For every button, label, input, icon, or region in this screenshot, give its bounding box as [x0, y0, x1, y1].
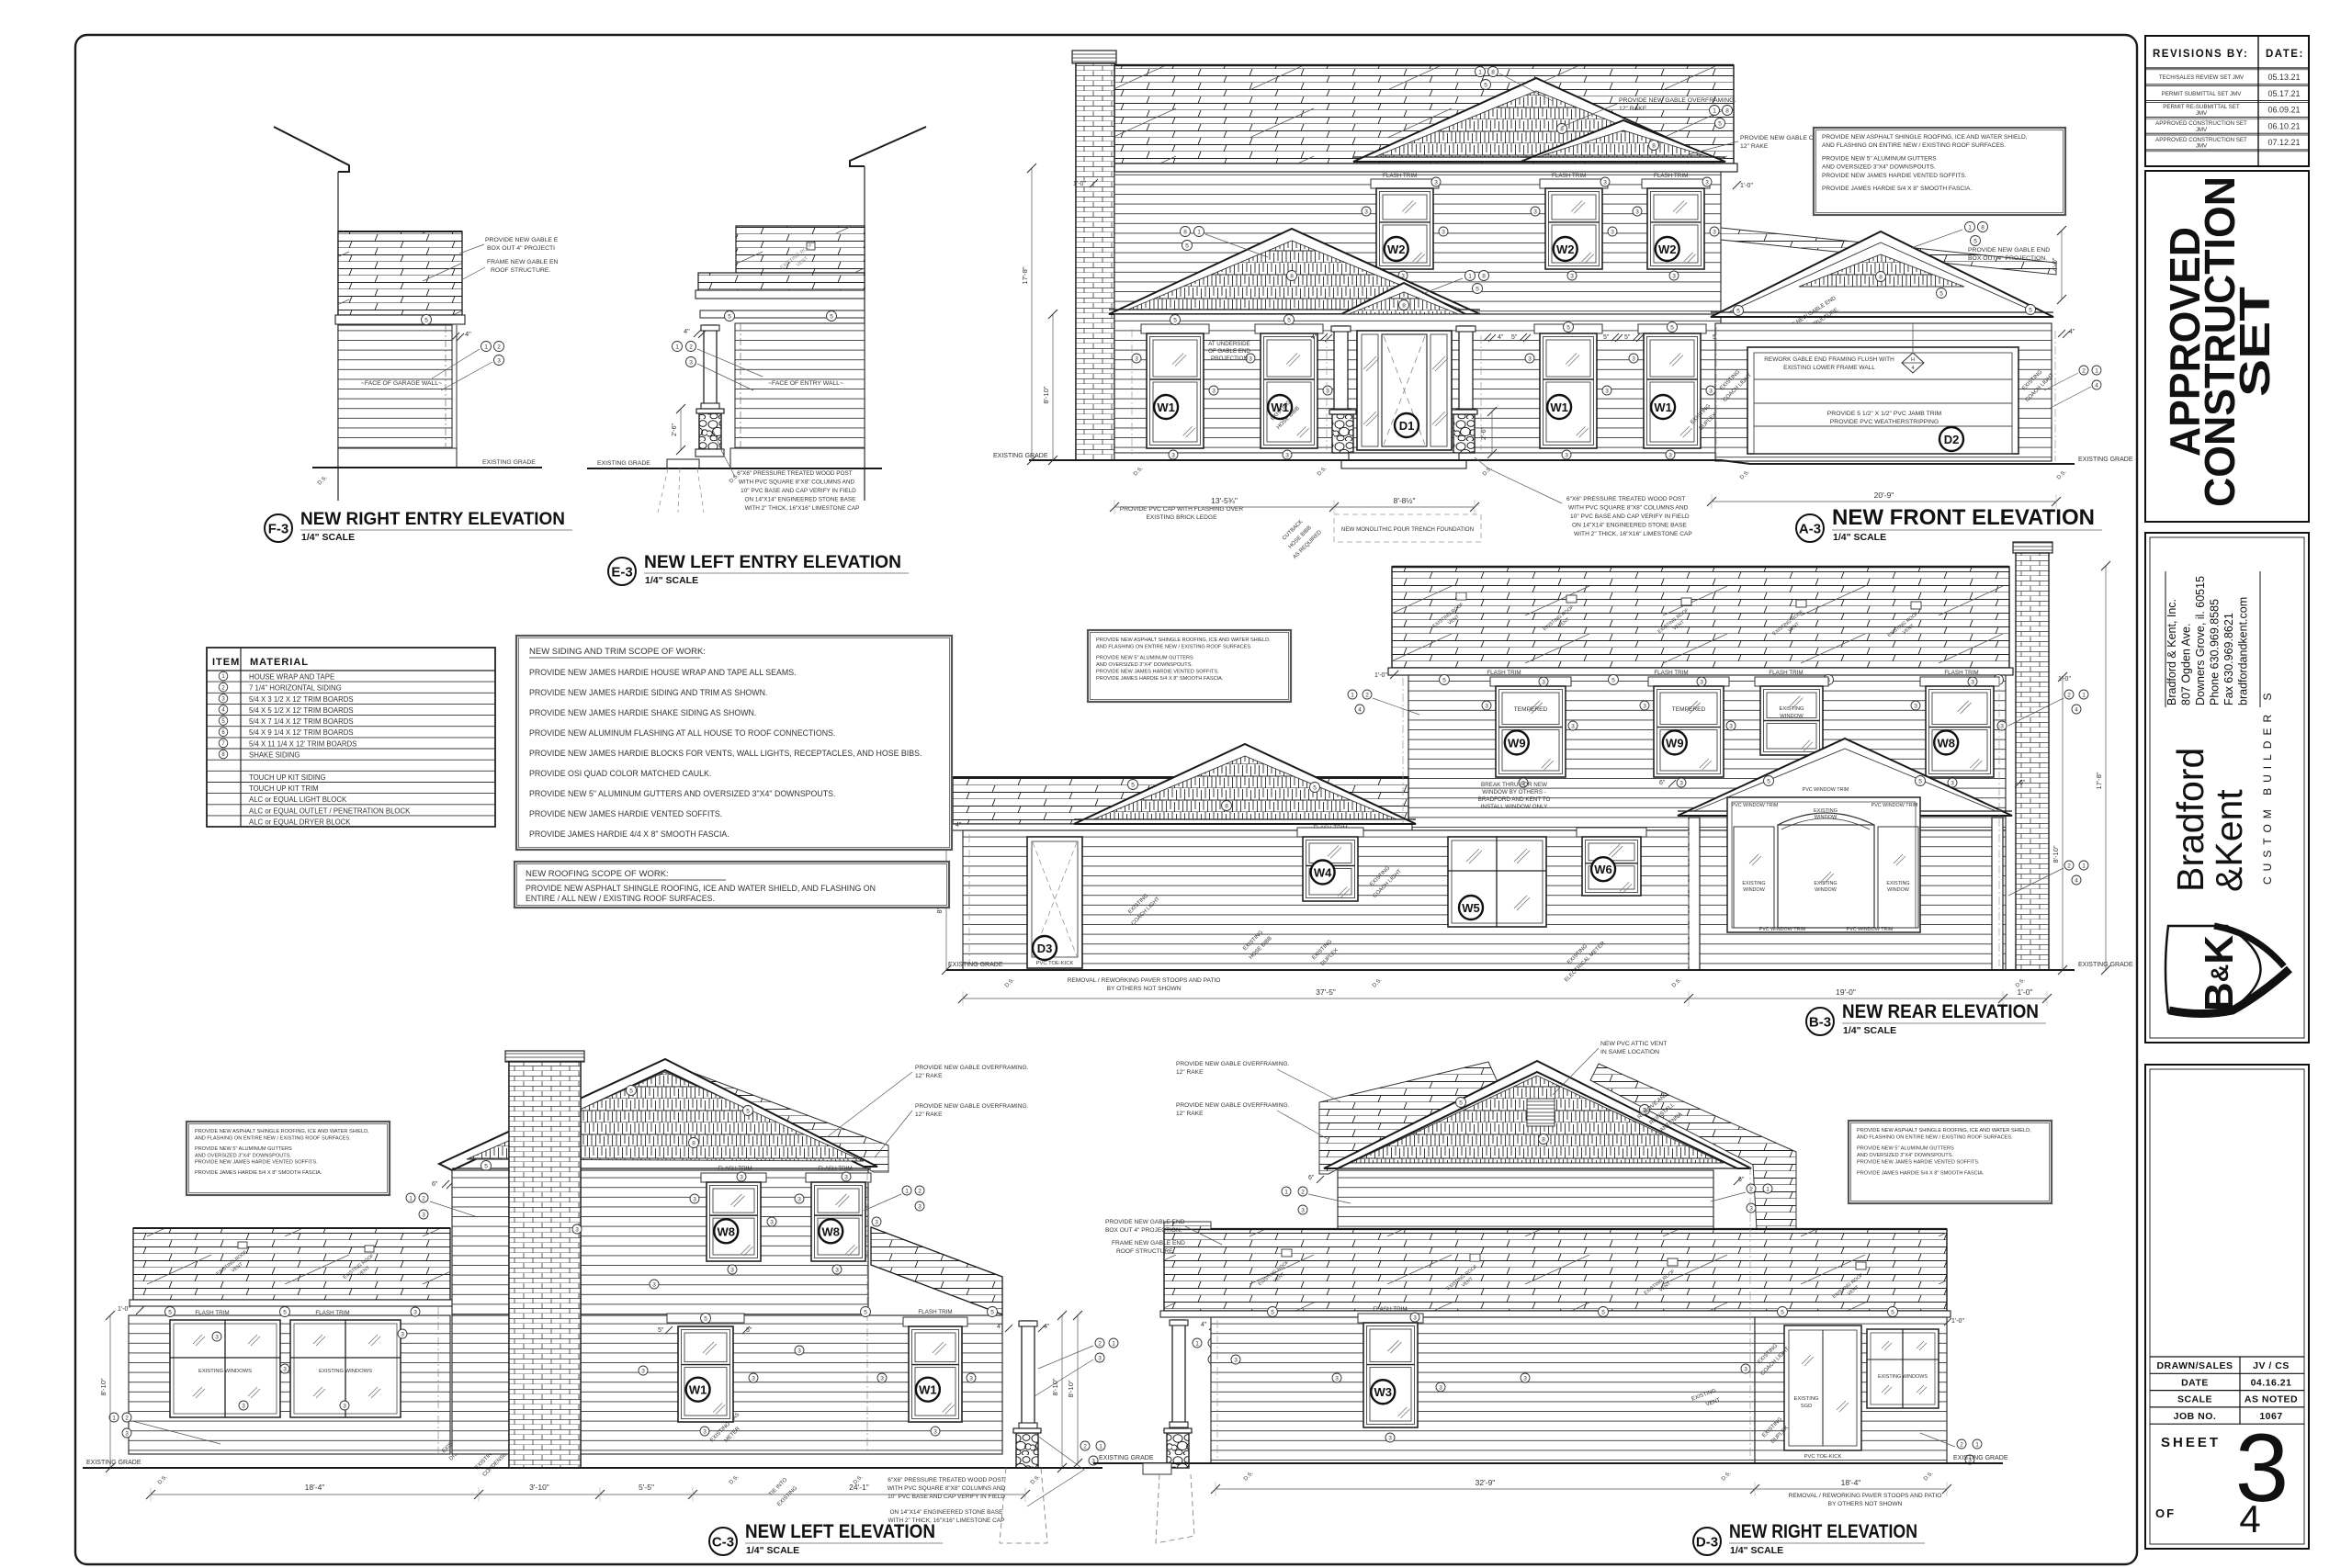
svg-text:5: 5	[1939, 290, 1943, 297]
svg-text:PROVIDE 5 1/2" X 1/2" PVC JAM: PROVIDE 5 1/2" X 1/2" PVC JAMB TRIM	[1827, 411, 1942, 417]
svg-text:ROOF STRUCTURE.: ROOF STRUCTURE.	[491, 267, 550, 274]
svg-text:W3: W3	[1374, 1385, 1392, 1399]
svg-text:NEW RIGHT ELEVATION: NEW RIGHT ELEVATION	[1729, 1521, 1917, 1542]
svg-text:8: 8	[1225, 803, 1228, 809]
svg-text:5: 5	[1918, 778, 1922, 784]
svg-text:5: 5	[1611, 677, 1615, 683]
svg-text:WINDOW: WINDOW	[1743, 887, 1766, 893]
svg-text:PROVIDE JAMES HARDIE 5/4 X 8": PROVIDE JAMES HARDIE 5/4 X 8" SMOOTH FAS…	[1822, 186, 1972, 192]
svg-text:~FACE OF ENTRY WALL~: ~FACE OF ENTRY WALL~	[768, 380, 843, 387]
svg-text:2: 2	[1960, 1441, 1963, 1448]
svg-text:8: 8	[1652, 142, 1656, 149]
svg-text:1: 1	[905, 1188, 909, 1194]
svg-text:A-3: A-3	[1799, 522, 1821, 537]
svg-text:BOX OUT 4" PROJECTION.: BOX OUT 4" PROJECTION.	[1105, 1227, 1182, 1234]
svg-text:12" RAKE: 12" RAKE	[1619, 106, 1647, 112]
svg-text:AND FLASHING ON ENTIRE NEW / E: AND FLASHING ON ENTIRE NEW / EXISTING RO…	[1096, 645, 1252, 650]
svg-text:WITH PVC SQUARE 8"X8" COLUMNS: WITH PVC SQUARE 8"X8" COLUMNS AND	[888, 1485, 1006, 1492]
svg-text:3: 3	[969, 1375, 973, 1382]
svg-text:05.13.21: 05.13.21	[2267, 73, 2300, 82]
svg-text:WINDOW BY OTHERS -: WINDOW BY OTHERS -	[1482, 789, 1546, 795]
svg-text:PROVIDE NEW JAMES HARDIE VENTE: PROVIDE NEW JAMES HARDIE VENTED SOFFITS.	[529, 809, 722, 818]
svg-text:NEW FRONT ELEVATION: NEW FRONT ELEVATION	[1832, 505, 2095, 530]
svg-text:PROVIDE JAMES HARDIE 4/4 X 8": PROVIDE JAMES HARDIE 4/4 X 8" SMOOTH FAS…	[529, 829, 729, 839]
svg-text:5: 5	[1476, 286, 1479, 292]
svg-text:5": 5"	[658, 1327, 664, 1334]
svg-text:PROVIDE NEW ASPHALT SHINGLE RO: PROVIDE NEW ASPHALT SHINGLE ROOFING, ICE…	[195, 1129, 369, 1134]
svg-text:AND OVERSIZED 3"X4" DOWNSPOUTS: AND OVERSIZED 3"X4" DOWNSPOUTS.	[195, 1153, 291, 1158]
svg-text:3: 3	[283, 1366, 287, 1372]
svg-text:PROVIDE NEW ASPHALT SHINGLE RO: PROVIDE NEW ASPHALT SHINGLE ROOFING, ICE…	[1096, 637, 1271, 643]
svg-text:PROVIDE NEW GABLE E: PROVIDE NEW GABLE E	[485, 237, 559, 243]
svg-text:6"X6" PRESSURE TREATED WOOD PO: 6"X6" PRESSURE TREATED WOOD POST	[737, 470, 852, 477]
svg-text:3: 3	[1301, 1207, 1305, 1213]
svg-text:3: 3	[770, 1219, 774, 1225]
svg-text:WINDOW: WINDOW	[1780, 714, 1804, 719]
svg-text:17'-8": 17'-8"	[2095, 772, 2103, 789]
svg-text:8: 8	[1482, 273, 1486, 279]
svg-text:JMV: JMV	[2196, 110, 2208, 117]
svg-text:3: 3	[1565, 452, 1568, 458]
svg-text:2: 2	[1083, 1443, 1087, 1450]
svg-text:NEW ROOFING SCOPE OF WORK:: NEW ROOFING SCOPE OF WORK:	[526, 869, 669, 879]
svg-text:W9: W9	[1508, 736, 1526, 750]
svg-text:PROVIDE NEW JAMES HARDIE BLOCK: PROVIDE NEW JAMES HARDIE BLOCKS FOR VENT…	[529, 749, 922, 758]
svg-text:3: 3	[933, 1428, 937, 1435]
svg-text:4": 4"	[684, 327, 690, 335]
svg-text:EXISTING GRADE: EXISTING GRADE	[1953, 1455, 2008, 1461]
svg-text:PROVIDE NEW GABLE END: PROVIDE NEW GABLE END	[1968, 247, 2050, 254]
svg-text:W1: W1	[1550, 400, 1568, 414]
svg-text:5: 5	[1313, 784, 1317, 791]
svg-text:8'-10": 8'-10"	[1042, 386, 1050, 403]
svg-text:3: 3	[1212, 388, 1216, 394]
svg-text:3: 3	[125, 1430, 129, 1437]
svg-text:ON 14"X14" ENGINEERED STONE BA: ON 14"X14" ENGINEERED STONE BASE	[890, 1509, 1004, 1516]
svg-text:SCALE: SCALE	[2177, 1394, 2212, 1405]
svg-text:5: 5	[1891, 1309, 1894, 1315]
svg-text:6": 6"	[1308, 1175, 1315, 1181]
svg-text:3: 3	[1533, 209, 1537, 215]
svg-text:3: 3	[1234, 1357, 1238, 1363]
svg-text:BY OTHERS NOT SHOWN: BY OTHERS NOT SHOWN	[1107, 986, 1182, 992]
svg-text:6"X6" PRESSURE TREATED WOOD PO: 6"X6" PRESSURE TREATED WOOD POST	[1566, 496, 1685, 502]
svg-text:3: 3	[730, 1267, 734, 1273]
svg-text:1/4" SCALE: 1/4" SCALE	[1833, 532, 1886, 543]
svg-text:AND OVERSIZED 3"X4" DOWNSPOUTS: AND OVERSIZED 3"X4" DOWNSPOUTS.	[1096, 662, 1193, 668]
svg-text:3: 3	[401, 1331, 404, 1337]
svg-text:W2: W2	[1387, 243, 1406, 256]
svg-text:2: 2	[422, 1195, 425, 1201]
svg-text:3: 3	[875, 1219, 878, 1225]
svg-text:1: 1	[1351, 692, 1354, 698]
svg-text:5/4 X 9 1/4 X 12' TRIM BOARDS: 5/4 X 9 1/4 X 12' TRIM BOARDS	[249, 728, 354, 737]
svg-text:D2: D2	[1944, 433, 1960, 446]
svg-text:BOX OUT 4" PROJECTION.: BOX OUT 4" PROJECTION.	[1968, 255, 2047, 262]
svg-text:8'-10": 8'-10"	[99, 1378, 107, 1395]
svg-text:FLASH TRIM: FLASH TRIM	[1383, 173, 1417, 179]
svg-text:5: 5	[168, 1309, 172, 1315]
svg-text:8'-10": 8'-10"	[1051, 1378, 1059, 1395]
svg-text:2: 2	[2067, 692, 2071, 698]
svg-text:3: 3	[1709, 388, 1713, 394]
svg-text:4": 4"	[465, 330, 471, 338]
svg-text:PROVIDE NEW 5" ALUMINUM GUTTER: PROVIDE NEW 5" ALUMINUM GUTTERS	[1857, 1145, 1954, 1151]
svg-text:3: 3	[343, 1403, 346, 1409]
svg-text:W8: W8	[1937, 736, 1955, 750]
svg-text:EXISTING GRADE: EXISTING GRADE	[2078, 457, 2133, 463]
svg-text:4": 4"	[955, 822, 962, 829]
svg-text:W6: W6	[1594, 863, 1612, 876]
svg-text:EXISTING: EXISTING	[1779, 706, 1804, 712]
svg-text:5: 5	[484, 1163, 488, 1169]
svg-text:SHAKE SIDING: SHAKE SIDING	[249, 751, 300, 760]
svg-text:Bradford & Kent, Inc.: Bradford & Kent, Inc.	[2165, 599, 2178, 705]
svg-text:3: 3	[1135, 355, 1138, 362]
svg-text:PROVIDE NEW ALUMINUM FLASHING: PROVIDE NEW ALUMINUM FLASHING AT ALL HOU…	[529, 728, 835, 738]
svg-text:8: 8	[692, 1140, 695, 1146]
svg-text:PROVIDE JAMES HARDIE 5/4 X 8": PROVIDE JAMES HARDIE 5/4 X 8" SMOOTH FAS…	[195, 1170, 322, 1176]
svg-text:W2: W2	[1556, 243, 1575, 256]
svg-text:WINDOW: WINDOW	[1815, 815, 1837, 820]
svg-text:5: 5	[1271, 1309, 1274, 1315]
svg-text:2: 2	[1365, 692, 1369, 698]
svg-text:5: 5	[728, 313, 731, 320]
svg-text:PROVIDE JAMES HARDIE 5/4 X 8": PROVIDE JAMES HARDIE 5/4 X 8" SMOOTH FAS…	[1096, 676, 1224, 682]
svg-text:FLASH TRIM: FLASH TRIM	[918, 1309, 952, 1315]
svg-text:8'-8½": 8'-8½"	[1393, 496, 1415, 505]
svg-text:TECH/SALES REVIEW SET JMV: TECH/SALES REVIEW SET JMV	[2159, 74, 2245, 81]
svg-text:5: 5	[1973, 238, 1977, 244]
svg-text:07.12.21: 07.12.21	[2267, 138, 2300, 147]
svg-text:WITH PVC SQUARE 8"X8" COLUMNS: WITH PVC SQUARE 8"X8" COLUMNS AND	[1568, 505, 1689, 512]
svg-text:2: 2	[2067, 863, 2071, 869]
svg-text:PROVIDE NEW JAMES HARDIE VENTE: PROVIDE NEW JAMES HARDIE VENTED SOFFITS.	[1096, 670, 1219, 675]
svg-text:PROVIDE OSI QUAD COLOR MATCHED: PROVIDE OSI QUAD COLOR MATCHED CAULK.	[529, 769, 711, 778]
svg-text:6": 6"	[1659, 780, 1666, 786]
svg-text:JMV: JMV	[2196, 127, 2208, 133]
svg-text:1'-0": 1'-0"	[118, 1306, 130, 1313]
svg-text:12" RAKE: 12" RAKE	[915, 1111, 943, 1118]
svg-text:NEW REAR ELEVATION: NEW REAR ELEVATION	[1842, 1001, 2039, 1022]
svg-text:1: 1	[1975, 1441, 1979, 1448]
svg-text:5/4 X 7 1/4 X 12' TRIM BOARDS: 5/4 X 7 1/4 X 12' TRIM BOARDS	[249, 717, 354, 726]
svg-text:8: 8	[1183, 229, 1187, 235]
svg-text:2: 2	[2082, 367, 2086, 374]
svg-text:REVISIONS BY:: REVISIONS BY:	[2153, 49, 2248, 60]
svg-text:5: 5	[1670, 324, 1674, 331]
svg-text:&Kent: &Kent	[2208, 789, 2250, 892]
svg-text:3: 3	[797, 1196, 801, 1202]
svg-text:3: 3	[1749, 1205, 1753, 1212]
svg-text:3: 3	[844, 1174, 848, 1180]
svg-text:PROVIDE NEW JAMES HARDIE VENTE: PROVIDE NEW JAMES HARDIE VENTED SOFFITS.	[195, 1160, 318, 1166]
svg-text:AND FLASHING ON ENTIRE NEW / E: AND FLASHING ON ENTIRE NEW / EXISTING RO…	[1822, 142, 2006, 149]
svg-text:5: 5	[1601, 1309, 1605, 1315]
svg-text:FRAME NEW GABLE END: FRAME NEW GABLE END	[1112, 1240, 1185, 1247]
svg-text:4": 4"	[1044, 1324, 1050, 1330]
svg-text:NEW SIDING AND TRIM SCOPE OF W: NEW SIDING AND TRIM SCOPE OF WORK:	[529, 647, 706, 657]
svg-text:NEW MONOLITHIC POUR TRENCH FOU: NEW MONOLITHIC POUR TRENCH FOUNDATION	[1341, 526, 1474, 533]
svg-text:2'-6": 2'-6"	[672, 423, 678, 436]
svg-text:ENTIRE / ALL NEW / EXISTING RO: ENTIRE / ALL NEW / EXISTING ROOF SURFACE…	[526, 894, 715, 903]
svg-text:PROVIDE NEW JAMES HARDIE SIDIN: PROVIDE NEW JAMES HARDIE SIDING AND TRIM…	[529, 688, 767, 697]
svg-text:1: 1	[1478, 69, 1482, 75]
svg-text:PVC WINDOW TRIM: PVC WINDOW TRIM	[1759, 927, 1806, 932]
svg-text:3: 3	[1971, 679, 1974, 685]
svg-text:TEMPERED: TEMPERED	[1514, 706, 1548, 713]
svg-text:5: 5	[990, 1309, 994, 1315]
svg-text:3: 3	[1098, 1355, 1102, 1361]
svg-text:FRAME NEW GABLE EN: FRAME NEW GABLE EN	[487, 259, 559, 265]
svg-text:1: 1	[1112, 1340, 1115, 1347]
svg-text:4": 4"	[1311, 334, 1317, 341]
svg-text:PVC WINDOW TRIM: PVC WINDOW TRIM	[1803, 787, 1849, 793]
svg-text:5: 5	[864, 1309, 867, 1315]
svg-text:17'-8": 17'-8"	[1021, 266, 1029, 284]
svg-text:5: 5	[629, 1088, 633, 1094]
svg-text:3: 3	[497, 357, 501, 364]
svg-text:3: 3	[1171, 452, 1175, 458]
svg-text:NEW RIGHT ENTRY ELEVATION: NEW RIGHT ENTRY ELEVATION	[300, 510, 565, 529]
svg-text:2'-6": 2'-6"	[1481, 427, 1487, 440]
svg-text:5: 5	[704, 1315, 707, 1322]
svg-text:1'-0": 1'-0"	[1951, 1318, 1964, 1325]
svg-text:CUSTOM BUILDER S: CUSTOM BUILDER S	[2261, 688, 2274, 885]
svg-text:FLASH TRIM: FLASH TRIM	[818, 1166, 852, 1172]
svg-text:3: 3	[1570, 273, 1574, 279]
svg-text:D3: D3	[1037, 942, 1053, 955]
svg-text:C-3: C-3	[712, 1535, 734, 1551]
svg-text:3: 3	[797, 1348, 801, 1354]
svg-text:OF GABLE END: OF GABLE END	[1208, 348, 1250, 355]
svg-text:1: 1	[1197, 229, 1201, 235]
svg-text:NEW LEFT ENTRY ELEVATION: NEW LEFT ENTRY ELEVATION	[644, 553, 901, 572]
svg-text:3: 3	[242, 1403, 245, 1409]
svg-text:2: 2	[1301, 1189, 1305, 1195]
svg-text:W5: W5	[1462, 901, 1480, 915]
svg-text:TEMPERED: TEMPERED	[1672, 706, 1706, 713]
svg-text:6": 6"	[2019, 780, 2026, 786]
svg-text:~FACE OF GARAGE WALL~: ~FACE OF GARAGE WALL~	[361, 380, 442, 387]
svg-text:PROVIDE PVC WEATHERSTRIPPING: PROVIDE PVC WEATHERSTRIPPING	[1830, 419, 1939, 425]
svg-text:5'-5": 5'-5"	[639, 1483, 654, 1492]
svg-text:3: 3	[652, 1281, 656, 1288]
svg-text:ON 14"X14" ENGINEERED STONE BA: ON 14"X14" ENGINEERED STONE BASE	[1572, 523, 1687, 529]
svg-text:PROVIDE PVC CAP WITH FLASHING: PROVIDE PVC CAP WITH FLASHING OVER	[1120, 506, 1244, 513]
svg-text:EXISTING GRADE: EXISTING GRADE	[948, 962, 1003, 968]
svg-text:20'-9": 20'-9"	[1874, 491, 1894, 500]
svg-text:4": 4"	[1201, 1322, 1207, 1328]
svg-text:4'-0": 4'-0"	[2051, 257, 2059, 271]
svg-text:PROVIDE NEW GABLE OVERFRAMING.: PROVIDE NEW GABLE OVERFRAMING.	[1176, 1061, 1290, 1067]
svg-text:6"X6" PRESSURE TREATED WOOD PO: 6"X6" PRESSURE TREATED WOOD POST	[888, 1477, 1005, 1483]
svg-text:3: 3	[1249, 355, 1252, 362]
svg-text:2: 2	[689, 344, 693, 350]
svg-text:4": 4"	[1498, 334, 1504, 341]
svg-text:2: 2	[125, 1415, 129, 1421]
svg-text:PROVIDE NEW JAMES HARDIE VENTE: PROVIDE NEW JAMES HARDIE VENTED SOFFITS.	[1857, 1160, 1980, 1166]
svg-text:JOB NO.: JOB NO.	[2174, 1411, 2217, 1422]
svg-text:FLASH TRIM: FLASH TRIM	[1944, 670, 1978, 676]
svg-text:10" PVC BASE AND CAP VERIFY IN: 10" PVC BASE AND CAP VERIFY IN FIELD	[1570, 513, 1690, 520]
svg-text:5: 5	[1484, 82, 1487, 88]
svg-text:18'-4": 18'-4"	[1841, 1478, 1861, 1487]
svg-text:8: 8	[1290, 273, 1294, 279]
svg-text:EXISTING: EXISTING	[1793, 1396, 1819, 1402]
svg-text:D-3: D-3	[1696, 1535, 1718, 1551]
svg-text:8'-10": 8'-10"	[2052, 845, 2060, 863]
svg-text:WITH 2" THICK, 16"X16" LIMESTO: WITH 2" THICK, 16"X16" LIMESTONE CAP	[1574, 531, 1692, 537]
svg-text:1'-0": 1'-0"	[2018, 987, 2033, 997]
svg-text:IN SAME LOCATION: IN SAME LOCATION	[1600, 1049, 1659, 1055]
svg-text:1/4" SCALE: 1/4" SCALE	[645, 575, 698, 586]
svg-text:3: 3	[880, 1375, 884, 1382]
svg-text:3: 3	[1485, 703, 1488, 709]
svg-text:3: 3	[1713, 229, 1716, 235]
svg-text:1: 1	[2082, 692, 2086, 698]
svg-text:5: 5	[2029, 307, 2032, 313]
svg-text:3: 3	[1523, 1375, 1527, 1382]
svg-text:FLASH TRIM: FLASH TRIM	[315, 1310, 349, 1316]
svg-text:3: 3	[413, 1309, 417, 1315]
svg-text:F-3: F-3	[268, 522, 289, 537]
svg-text:3: 3	[1632, 355, 1635, 362]
svg-text:3: 3	[1285, 452, 1289, 458]
svg-text:3: 3	[1388, 1435, 1392, 1441]
svg-text:3: 3	[1528, 355, 1532, 362]
svg-text:1: 1	[1766, 1186, 1770, 1192]
svg-text:REWORK GABLE END FRAMING FLUSH: REWORK GABLE END FRAMING FLUSH WITH	[1764, 356, 1894, 363]
svg-text:5: 5	[1287, 317, 1291, 323]
svg-text:EXISTING BRICK LEDGE: EXISTING BRICK LEDGE	[1147, 514, 1218, 521]
svg-text:5/4 X 3 1/2 X 12' TRIM BOARDS: 5/4 X 3 1/2 X 12' TRIM BOARDS	[249, 695, 354, 704]
svg-text:3: 3	[1951, 780, 1954, 786]
svg-text:WITH PVC SQUARE 8"X8" COLUMNS: WITH PVC SQUARE 8"X8" COLUMNS AND	[739, 479, 855, 486]
svg-text:PROVIDE NEW JAMES HARDIE HOUSE: PROVIDE NEW JAMES HARDIE HOUSE WRAP AND …	[529, 668, 797, 677]
svg-text:8: 8	[1981, 224, 1984, 231]
svg-text:PROVIDE NEW GABLE END: PROVIDE NEW GABLE END	[1105, 1219, 1185, 1225]
svg-text:DATE:: DATE:	[2266, 49, 2304, 60]
svg-text:8: 8	[1402, 302, 1406, 309]
svg-text:D1: D1	[1399, 419, 1415, 433]
svg-text:JV / CS: JV / CS	[2253, 1360, 2290, 1371]
svg-text:PERMIT SUBMITTAL SET JMV: PERMIT SUBMITTAL SET JMV	[2162, 91, 2243, 97]
svg-text:06.10.21: 06.10.21	[2267, 121, 2300, 130]
svg-text:4: 4	[2075, 877, 2078, 884]
svg-text:PROVIDE NEW 5" ALUMINUM GUTTER: PROVIDE NEW 5" ALUMINUM GUTTERS	[1096, 655, 1193, 660]
svg-text:4": 4"	[2069, 329, 2075, 335]
svg-text:3: 3	[1364, 209, 1368, 215]
svg-text:12" RAKE: 12" RAKE	[1176, 1111, 1204, 1117]
svg-text:TOUCH UP KIT SIDING: TOUCH UP KIT SIDING	[249, 773, 326, 782]
svg-text:W9: W9	[1666, 736, 1684, 750]
svg-text:13'-5¾": 13'-5¾"	[1211, 496, 1238, 505]
svg-text:1: 1	[675, 344, 679, 350]
svg-text:PROJECTION: PROJECTION	[1211, 355, 1248, 362]
svg-text:06.09.21: 06.09.21	[2267, 106, 2300, 115]
svg-text:5/4 X 11 1/4 X 12' TRIM BOARDS: 5/4 X 11 1/4 X 12' TRIM BOARDS	[249, 739, 356, 748]
svg-text:EXISTING GRADE: EXISTING GRADE	[993, 453, 1048, 459]
svg-text:5: 5	[424, 317, 428, 323]
svg-text:5: 5	[1566, 324, 1570, 331]
svg-text:WINDOW: WINDOW	[1887, 887, 1910, 893]
svg-text:1: 1	[2095, 367, 2098, 374]
svg-text:1: 1	[1468, 273, 1472, 279]
svg-text:5: 5	[1131, 782, 1135, 788]
svg-text:8'-10": 8'-10"	[1067, 1380, 1075, 1397]
svg-text:19'-0": 19'-0"	[1836, 987, 1856, 997]
svg-text:MATERIAL: MATERIAL	[250, 657, 309, 668]
svg-text:FLASH TRIM: FLASH TRIM	[1654, 173, 1688, 179]
svg-text:3: 3	[1605, 388, 1609, 394]
svg-text:3: 3	[1679, 780, 1683, 786]
svg-text:AND FLASHING ON ENTIRE NEW / E: AND FLASHING ON ENTIRE NEW / EXISTING RO…	[195, 1135, 351, 1141]
svg-text:3: 3	[689, 359, 693, 366]
svg-text:W8: W8	[821, 1224, 840, 1238]
svg-text:3: 3	[1571, 723, 1575, 729]
svg-text:3: 3	[918, 1203, 922, 1210]
svg-text:FLASH TRIM: FLASH TRIM	[1487, 670, 1521, 676]
svg-text:4: 4	[2075, 706, 2078, 713]
svg-text:ALC or EQUAL DRYER BLOCK: ALC or EQUAL DRYER BLOCK	[249, 818, 351, 826]
svg-text:1: 1	[1284, 1189, 1288, 1195]
svg-text:1/4" SCALE: 1/4" SCALE	[1843, 1025, 1896, 1036]
svg-text:Fax 630.969.8621: Fax 630.969.8621	[2222, 613, 2235, 705]
svg-text:3: 3	[1611, 229, 1614, 235]
svg-text:FLASH TRIM: FLASH TRIM	[1552, 173, 1586, 179]
svg-text:W1: W1	[919, 1383, 937, 1397]
svg-text:W1: W1	[689, 1383, 707, 1397]
svg-text:1/4" SCALE: 1/4" SCALE	[301, 532, 355, 543]
svg-text:1: 1	[409, 1195, 413, 1201]
svg-text:3: 3	[1729, 723, 1733, 729]
svg-text:5: 5	[1442, 677, 1446, 683]
svg-text:PROVIDE NEW JAMES HARDIE VENTE: PROVIDE NEW JAMES HARDIE VENTED SOFFITS.	[1822, 173, 1967, 179]
svg-text:807 Ogden Ave.: 807 Ogden Ave.	[2180, 624, 2193, 705]
svg-text:ITEM: ITEM	[212, 657, 240, 668]
svg-text:EXISTING WINDOWS: EXISTING WINDOWS	[1878, 1374, 1928, 1380]
svg-text:3: 3	[575, 1226, 579, 1233]
svg-text:5: 5	[1459, 1100, 1463, 1106]
svg-text:5: 5	[1718, 120, 1722, 127]
svg-text:2: 2	[497, 344, 501, 350]
svg-text:5": 5"	[1603, 334, 1610, 341]
svg-text:EXISTING GRADE: EXISTING GRADE	[86, 1460, 141, 1466]
svg-text:24'-1": 24'-1"	[849, 1483, 869, 1492]
svg-text:H: H	[1911, 357, 1915, 363]
svg-text:3: 3	[1914, 703, 1917, 709]
svg-text:PROVIDE NEW JAMES HARDIE SHAKE: PROVIDE NEW JAMES HARDIE SHAKE SIDING AS…	[529, 708, 756, 717]
svg-text:32'-9": 32'-9"	[1476, 1478, 1496, 1487]
svg-text:3: 3	[641, 1368, 645, 1374]
svg-text:PROVIDE NEW GABLE OVERFRAMING.: PROVIDE NEW GABLE OVERFRAMING.	[1176, 1102, 1290, 1109]
svg-text:1/4" SCALE: 1/4" SCALE	[1730, 1545, 1783, 1556]
svg-text:3: 3	[835, 1267, 839, 1273]
svg-text:FLASH TRIM: FLASH TRIM	[1373, 1306, 1407, 1313]
svg-text:PROVIDE NEW ASPHALT SHINGLE RO: PROVIDE NEW ASPHALT SHINGLE ROOFING, ICE…	[1857, 1128, 2031, 1134]
svg-text:BREAK THRU FOR NEW: BREAK THRU FOR NEW	[1481, 782, 1547, 788]
svg-text:3: 3	[1668, 452, 1672, 458]
svg-text:5: 5	[830, 313, 833, 320]
svg-text:18'-4": 18'-4"	[305, 1483, 325, 1492]
svg-text:3: 3	[1705, 179, 1709, 186]
svg-text:AS NOTED: AS NOTED	[2245, 1394, 2298, 1405]
svg-text:37'-5": 37'-5"	[1316, 987, 1336, 997]
svg-text:WITH 2" THICK, 16"X16" LIMESTO: WITH 2" THICK, 16"X16" LIMESTONE CAP	[745, 505, 860, 512]
svg-text:PVC WINDOW TRIM: PVC WINDOW TRIM	[1732, 803, 1779, 808]
svg-text:3: 3	[1635, 209, 1639, 215]
